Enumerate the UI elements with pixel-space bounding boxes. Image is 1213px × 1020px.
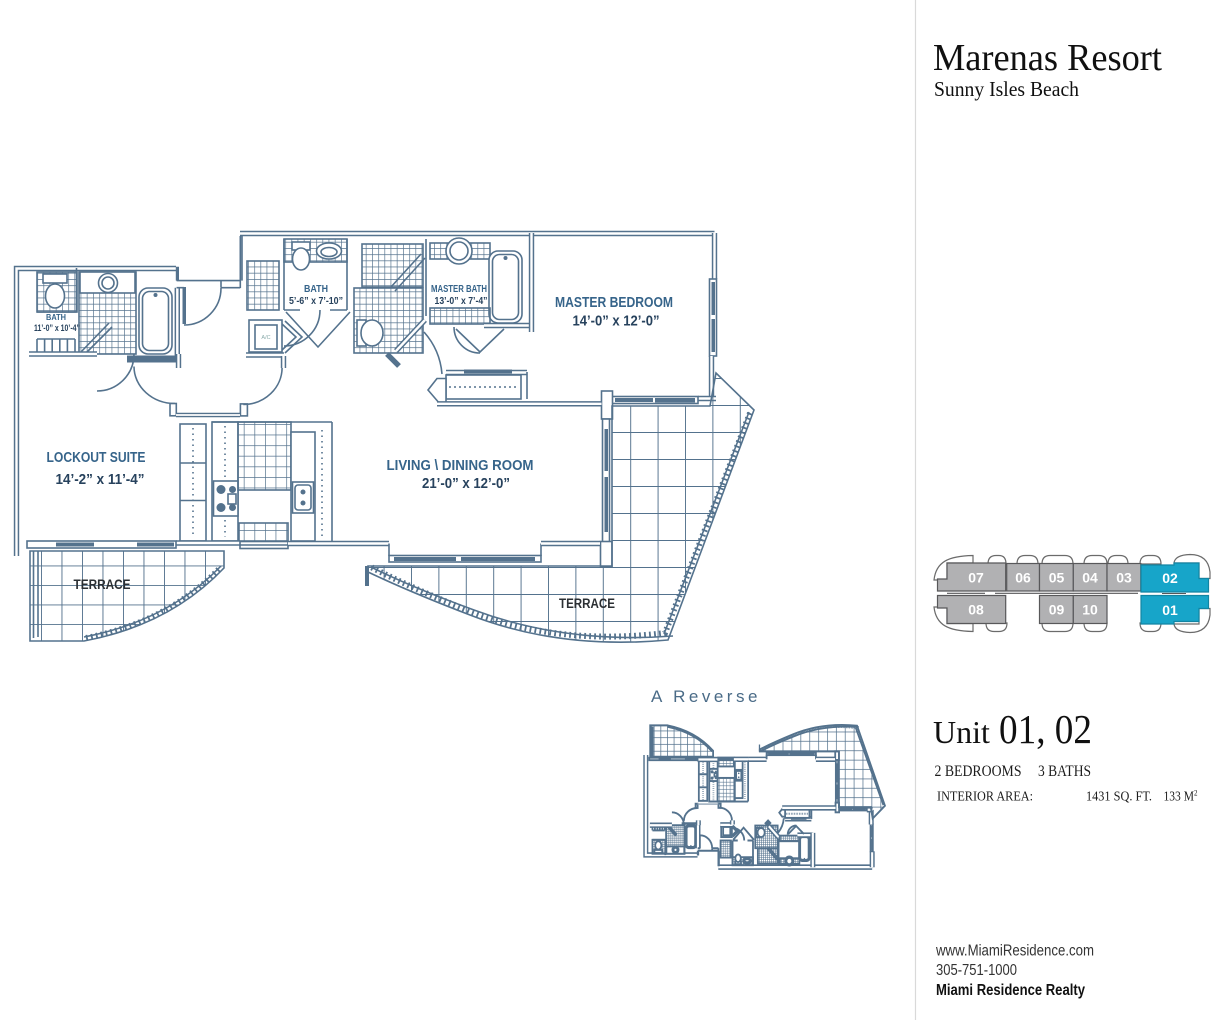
svg-text:01: 01	[1162, 602, 1178, 618]
svg-text:LOCKOUT SUITE: LOCKOUT SUITE	[47, 450, 146, 466]
svg-text:06: 06	[1015, 570, 1031, 586]
svg-text:04: 04	[1082, 570, 1098, 586]
svg-text:TERRACE: TERRACE	[74, 577, 131, 592]
svg-text:03: 03	[1116, 570, 1132, 586]
svg-text:1431 SQ. FT.: 1431 SQ. FT.	[1086, 790, 1152, 805]
svg-text:Unit: Unit	[933, 714, 990, 750]
svg-text:TERRACE: TERRACE	[559, 596, 615, 611]
svg-text:13’-0” x 7’-4”: 13’-0” x 7’-4”	[435, 295, 488, 307]
svg-text:Sunny Isles Beach: Sunny Isles Beach	[934, 77, 1079, 101]
svg-text:Marenas Resort: Marenas Resort	[933, 37, 1162, 79]
svg-text:14’-2” x 11’-4”: 14’-2” x 11’-4”	[56, 472, 145, 488]
svg-text:14’-0” x 12’-0”: 14’-0” x 12’-0”	[573, 314, 660, 330]
svg-text:09: 09	[1049, 602, 1065, 618]
svg-text:www.MiamiResidence.com: www.MiamiResidence.com	[935, 943, 1094, 960]
svg-text:MASTER BEDROOM: MASTER BEDROOM	[555, 295, 673, 311]
svg-text:LIVING \ DINING ROOM: LIVING \ DINING ROOM	[387, 458, 534, 474]
svg-text:MASTER BATH: MASTER BATH	[431, 284, 487, 295]
svg-text:08: 08	[968, 602, 984, 618]
svg-text:3 BATHS: 3 BATHS	[1038, 763, 1091, 780]
svg-text:5’-6” x 7’-10”: 5’-6” x 7’-10”	[289, 295, 343, 307]
svg-text:BATH: BATH	[46, 312, 66, 322]
svg-text:A Reverse: A Reverse	[651, 687, 761, 706]
svg-text:07: 07	[968, 570, 984, 586]
svg-text:Miami Residence Realty: Miami Residence Realty	[936, 982, 1085, 999]
svg-text:05: 05	[1049, 570, 1065, 586]
svg-text:133 M2: 133 M2	[1164, 788, 1198, 805]
svg-text:11’-0” x 10’-4”: 11’-0” x 10’-4”	[34, 323, 80, 333]
svg-text:2 BEDROOMS: 2 BEDROOMS	[935, 763, 1022, 780]
svg-text:02: 02	[1162, 570, 1178, 586]
svg-text:21’-0” x 12’-0”: 21’-0” x 12’-0”	[422, 476, 510, 492]
svg-text:10: 10	[1082, 602, 1098, 618]
svg-text:INTERIOR AREA:: INTERIOR AREA:	[937, 790, 1033, 805]
svg-text:305-751-1000: 305-751-1000	[936, 962, 1017, 979]
svg-text:01, 02: 01, 02	[999, 706, 1092, 752]
svg-text:BATH: BATH	[304, 284, 328, 295]
svg-text:A/C: A/C	[261, 335, 270, 341]
